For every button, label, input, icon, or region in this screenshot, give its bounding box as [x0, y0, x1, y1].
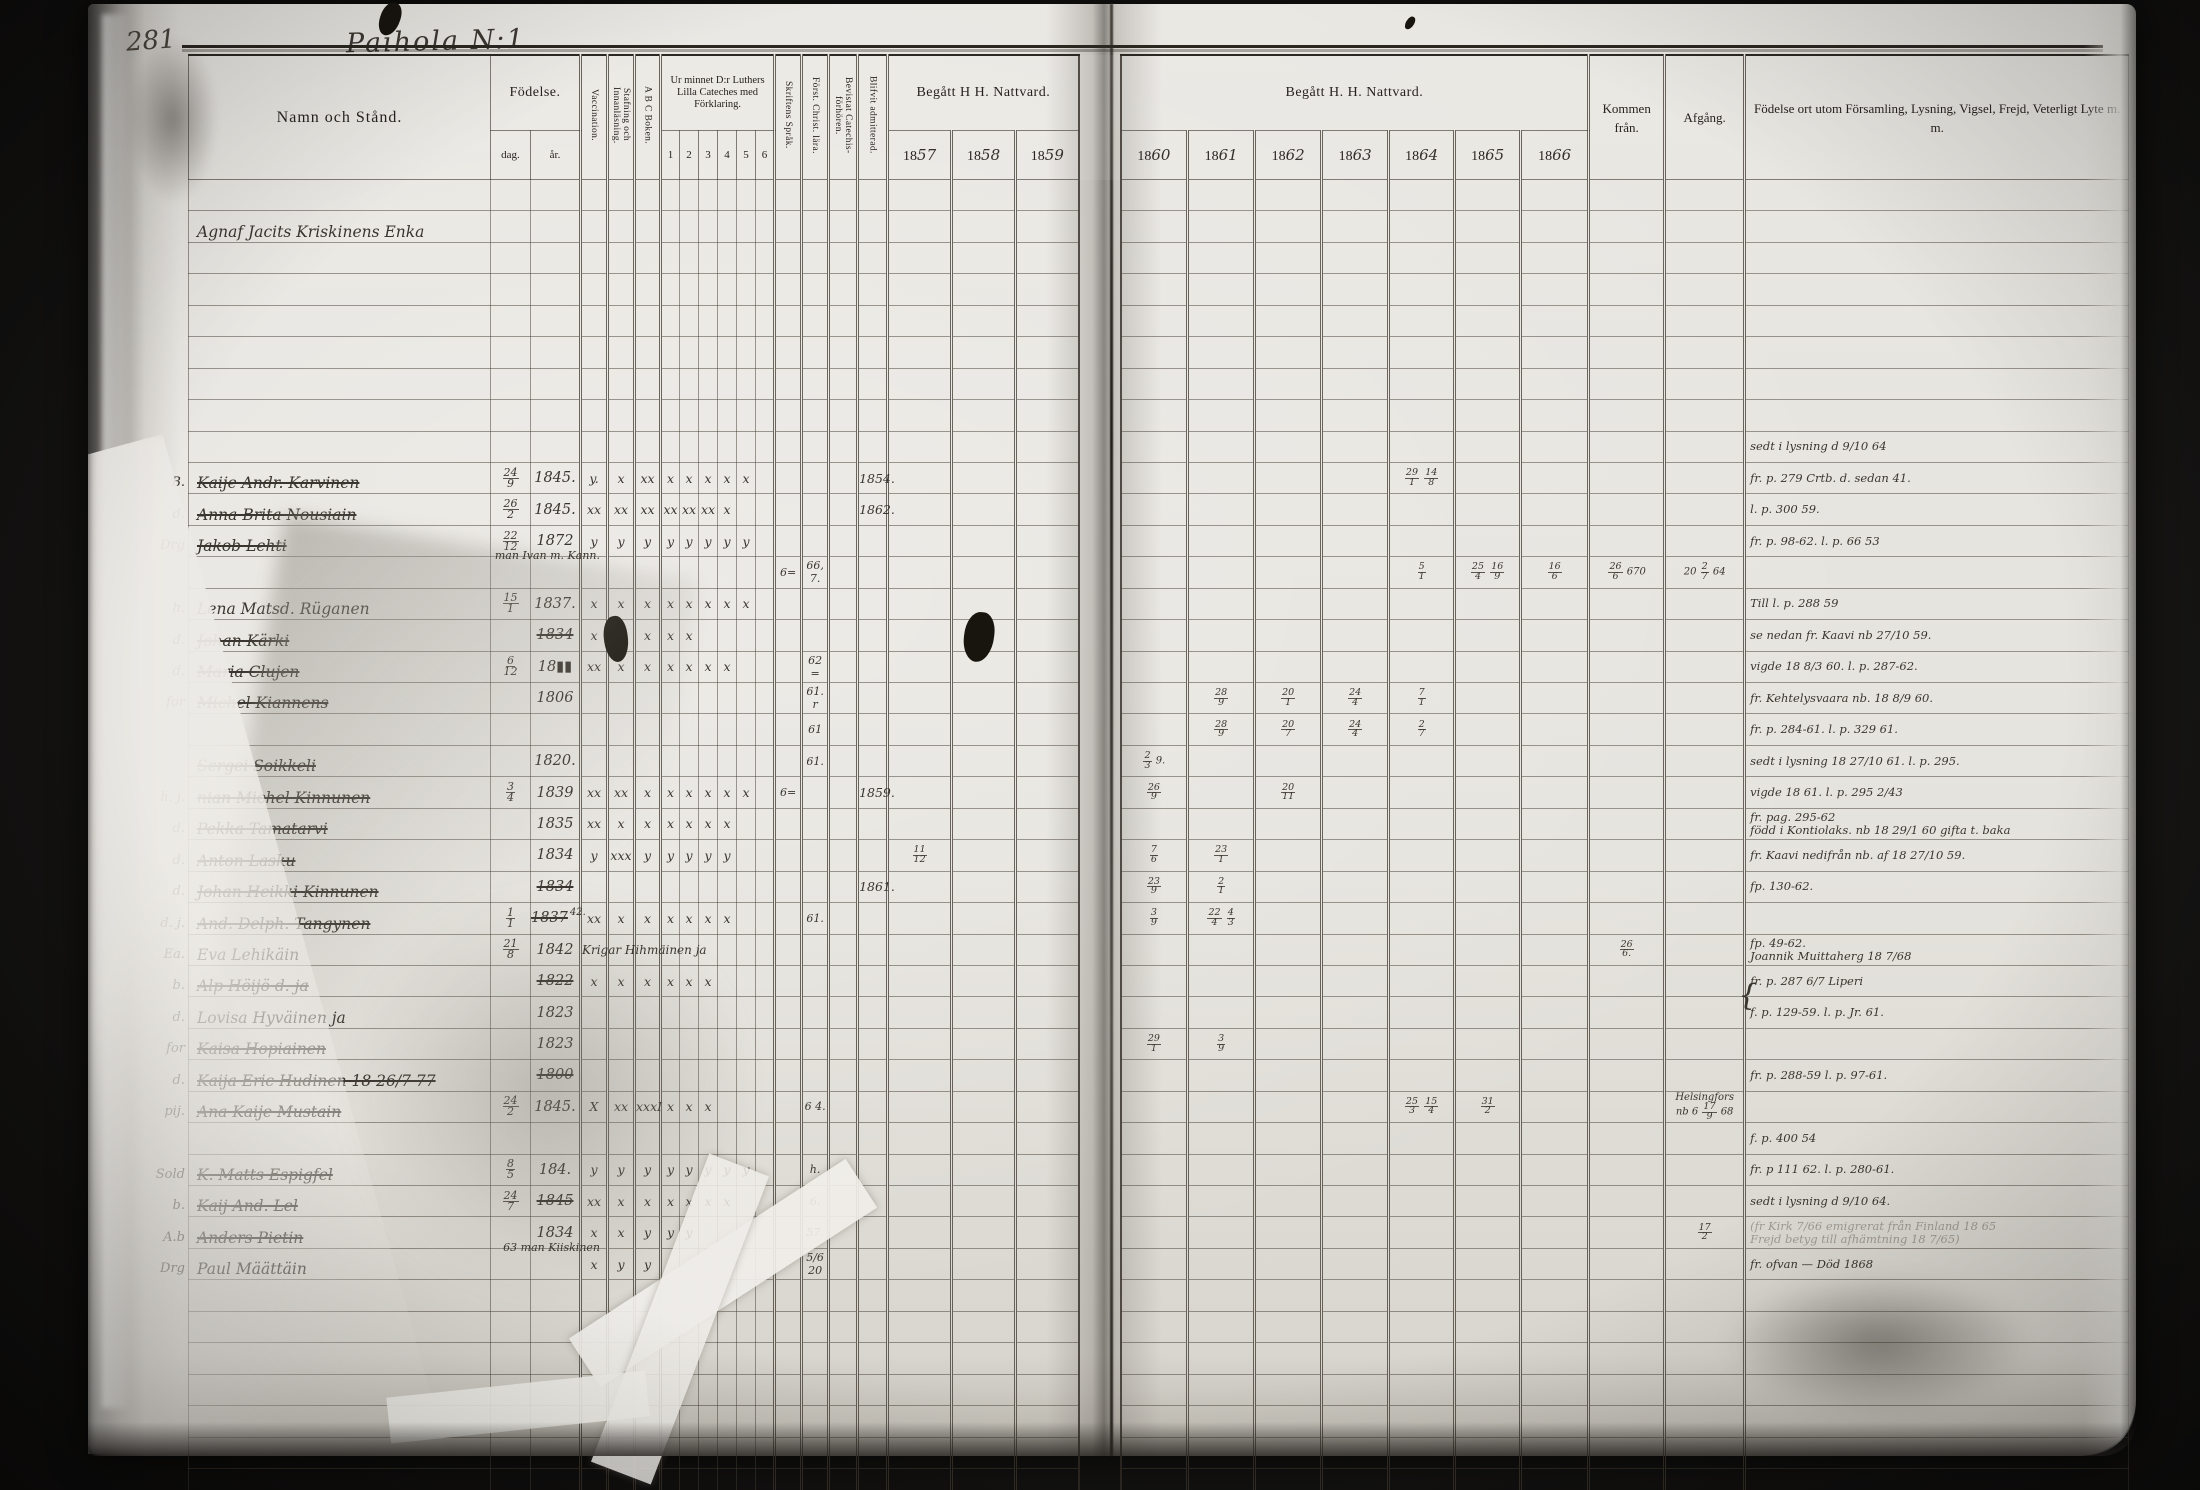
- cell-communion-1866: [1521, 777, 1589, 808]
- cell-communion-1862: [1255, 274, 1322, 305]
- cell-examinations: [829, 211, 858, 242]
- cell-came-from: [1589, 1154, 1665, 1185]
- cell-departure: [1665, 1060, 1745, 1091]
- cell-vaccination: [581, 1060, 608, 1091]
- cell-cat-1: [661, 274, 680, 305]
- cell-communion-1860: [1121, 620, 1188, 651]
- cell-communion-1863: [1322, 494, 1389, 525]
- cell-abc: [635, 1280, 661, 1311]
- cell-birth-day: [491, 1060, 531, 1091]
- cell-birth-day: 218: [491, 934, 531, 965]
- cell-cat-3: x: [699, 965, 718, 996]
- cell-examinations: [829, 1154, 858, 1185]
- cell-communion-1865: [1455, 1343, 1521, 1374]
- cell-examinations: [829, 242, 858, 273]
- cell-communion-1858: [952, 683, 1016, 714]
- cell-admitted: [858, 1343, 888, 1374]
- cell-remarks: fr. Kaavi nedifrån nb. af 18 27/10 59.: [1745, 840, 2129, 871]
- cell-admitted: [858, 1028, 888, 1059]
- cell-came-from: [1589, 305, 1665, 336]
- cell-communion-1859: [1016, 871, 1079, 902]
- cell-doctrine: 61.: [802, 903, 829, 934]
- cell-birth-day: [491, 683, 531, 714]
- cell-came-from: [1589, 903, 1665, 934]
- cell-name: [189, 305, 491, 336]
- cell-communion-1863: [1322, 337, 1389, 368]
- cell-scripture: [775, 211, 802, 242]
- cell-birth-day: 242: [491, 1091, 531, 1122]
- cell-cat-4: [718, 1123, 737, 1154]
- cell-communion-1865: [1455, 211, 1521, 242]
- cell-name: d.Maria Clujen: [189, 651, 491, 682]
- cell-vaccination: [581, 337, 608, 368]
- cell-abc: xxxI: [635, 1091, 661, 1122]
- cell-communion-1862: [1255, 1154, 1322, 1185]
- cell-admitted: 1861.: [858, 871, 888, 902]
- cell-birth-day: [491, 400, 531, 431]
- cell-admitted: [858, 1123, 888, 1154]
- cell-cat-3: [699, 211, 718, 242]
- cell-communion-1862: [1255, 1123, 1322, 1154]
- cell-communion-1866: [1521, 1060, 1589, 1091]
- cell-spelling: x: [608, 1186, 635, 1217]
- cell-communion-1858: [952, 903, 1016, 934]
- cell-doctrine: 5/6 20: [802, 1248, 829, 1279]
- cell-communion-1865: [1455, 965, 1521, 996]
- cell-communion-1863: [1322, 462, 1389, 493]
- cell-communion-1865: [1455, 525, 1521, 556]
- cell-cat-6: [756, 180, 775, 211]
- cell-departure: [1665, 997, 1745, 1028]
- cell-cat-2: y: [680, 840, 699, 871]
- cell-vaccination: xx: [581, 494, 608, 525]
- cell-examinations: [829, 400, 858, 431]
- cell-birth-year: 1800: [531, 1060, 581, 1091]
- cell-communion-1863: [1322, 651, 1389, 682]
- cell-name: [189, 1343, 491, 1374]
- cell-communion-1861: [1188, 1091, 1255, 1122]
- cell-communion-1865: [1455, 903, 1521, 934]
- column-header-came-from: Kommen från.: [1589, 55, 1665, 180]
- cell-cat-1: [661, 1248, 680, 1279]
- cell-communion-1862: [1255, 1217, 1322, 1248]
- cell-departure: [1665, 494, 1745, 525]
- cell-communion-1860: [1121, 997, 1188, 1028]
- cell-gutter: [1079, 997, 1121, 1028]
- cell-cat-5: [737, 180, 756, 211]
- cell-cat-4: x: [718, 588, 737, 619]
- cell-examinations: [829, 1091, 858, 1122]
- cell-communion-1863: 244: [1322, 714, 1389, 745]
- cell-cat-6: [756, 1091, 775, 1122]
- cell-spelling: y: [608, 525, 635, 556]
- cell-cat-6: [756, 1186, 775, 1217]
- cell-birth-year: 1845: [531, 1186, 581, 1217]
- cell-cat-6: [756, 1154, 775, 1185]
- cell-spelling: [608, 368, 635, 399]
- cell-spelling: [608, 211, 635, 242]
- cell-doctrine: [802, 180, 829, 211]
- cell-cat-6: [756, 745, 775, 776]
- cell-communion-1858: [952, 1280, 1016, 1311]
- cell-spelling: x: [608, 808, 635, 839]
- cell-gutter: [1079, 494, 1121, 525]
- year-header-1861: 1861: [1188, 131, 1255, 180]
- cell-communion-1864: 291 148: [1389, 462, 1455, 493]
- cell-communion-1859: [1016, 777, 1079, 808]
- cell-vaccination: [581, 180, 608, 211]
- cell-communion-1865: 254 169: [1455, 557, 1521, 588]
- cell-communion-1863: [1322, 620, 1389, 651]
- cell-cat-3: [699, 1217, 718, 1248]
- cell-departure: 172: [1665, 1217, 1745, 1248]
- cell-cat-1: y: [661, 840, 680, 871]
- cell-cat-5: [737, 683, 756, 714]
- cell-birth-year: 1834: [531, 871, 581, 902]
- cell-communion-1864: [1389, 305, 1455, 336]
- cell-name: b.Kaij And. Lel: [189, 1186, 491, 1217]
- cell-communion-1858: [952, 242, 1016, 273]
- cell-cat-1: [661, 1311, 680, 1342]
- cell-communion-1861: [1188, 1343, 1255, 1374]
- cell-name: SoldK. Matts Espigfel: [189, 1154, 491, 1185]
- cell-departure: [1665, 242, 1745, 273]
- cell-communion-1864: [1389, 1154, 1455, 1185]
- cell-communion-1861: [1188, 494, 1255, 525]
- cell-examinations: [829, 997, 858, 1028]
- cell-cat-4: [718, 557, 737, 588]
- cell-vaccination: [581, 1280, 608, 1311]
- cell-came-from: [1589, 1374, 1665, 1405]
- cell-cat-4: [718, 1343, 737, 1374]
- cell-admitted: [858, 211, 888, 242]
- cell-communion-1860: [1121, 1248, 1188, 1279]
- cell-gutter: [1079, 431, 1121, 462]
- cell-examinations: [829, 431, 858, 462]
- cell-cat-4: [718, 1028, 737, 1059]
- cell-communion-1861: [1188, 1374, 1255, 1405]
- cell-communion-1860: [1121, 305, 1188, 336]
- cell-gutter: [1079, 1091, 1121, 1122]
- cell-birth-year: 1845.: [531, 494, 581, 525]
- cell-communion-1865: [1455, 651, 1521, 682]
- cell-cat-3: [699, 368, 718, 399]
- cell-communion-1860: [1121, 1468, 1188, 1490]
- cell-scripture: [775, 934, 802, 965]
- cell-communion-1859: [1016, 431, 1079, 462]
- cell-cat-2: x: [680, 903, 699, 934]
- cell-communion-1862: [1255, 651, 1322, 682]
- cell-came-from: [1589, 368, 1665, 399]
- cell-cat-5: [737, 1468, 756, 1490]
- cell-examinations: [829, 934, 858, 965]
- cell-gutter: [1079, 462, 1121, 493]
- record-row: [189, 1468, 2129, 1490]
- cell-communion-1865: [1455, 777, 1521, 808]
- cell-spelling: [608, 1311, 635, 1342]
- cell-communion-1863: [1322, 431, 1389, 462]
- cell-cat-2: y: [680, 1217, 699, 1248]
- cell-gutter: [1079, 903, 1121, 934]
- cell-communion-1863: [1322, 903, 1389, 934]
- cell-communion-1860: [1121, 1123, 1188, 1154]
- cell-communion-1863: [1322, 934, 1389, 965]
- cell-communion-1862: 201: [1255, 683, 1322, 714]
- cell-communion-1865: [1455, 1123, 1521, 1154]
- cell-cat-4: [718, 1217, 737, 1248]
- cell-cat-3: y: [699, 840, 718, 871]
- column-header-spelling-reading: Stafning och Innanläsning.: [608, 55, 635, 180]
- cell-came-from: [1589, 1060, 1665, 1091]
- cell-communion-1862: [1255, 557, 1322, 588]
- cell-communion-1864: [1389, 997, 1455, 1028]
- cell-communion-1864: [1389, 1217, 1455, 1248]
- cell-birth-year: [531, 1468, 581, 1490]
- cell-communion-1866: [1521, 651, 1589, 682]
- book-right-page-edges: [2084, 4, 2136, 1456]
- cell-remarks: [1745, 1374, 2129, 1405]
- cell-communion-1866: [1521, 1091, 1589, 1122]
- cell-communion-1858: [952, 1091, 1016, 1122]
- cell-cat-5: [737, 368, 756, 399]
- cell-abc: [635, 745, 661, 776]
- record-row: h.Lena Matsd. Rüganen1511837.xxxxxxxxTil…: [189, 588, 2129, 619]
- cell-abc: [635, 714, 661, 745]
- cell-cat-6: [756, 808, 775, 839]
- cell-spelling: [608, 305, 635, 336]
- cell-remarks: [1745, 400, 2129, 431]
- cell-came-from: [1589, 1248, 1665, 1279]
- cell-cat-5: [737, 557, 756, 588]
- cell-communion-1866: [1521, 997, 1589, 1028]
- cell-cat-1: [661, 557, 680, 588]
- cell-doctrine: [802, 934, 829, 965]
- cell-scripture: [775, 1123, 802, 1154]
- cell-name: Agnaf Jacits Kriskinens Enka: [189, 211, 491, 242]
- cell-birth-year: 1845.: [531, 462, 581, 493]
- cell-communion-1859: [1016, 808, 1079, 839]
- cell-communion-1861: [1188, 997, 1255, 1028]
- cell-doctrine: [802, 494, 829, 525]
- cell-cat-3: [699, 242, 718, 273]
- cell-scripture: [775, 588, 802, 619]
- cell-doctrine: [802, 525, 829, 556]
- cell-communion-1864: [1389, 808, 1455, 839]
- cell-communion-1857: [888, 903, 952, 934]
- cell-departure: [1665, 1374, 1745, 1405]
- cell-communion-1859: [1016, 745, 1079, 776]
- cell-communion-1858: [952, 400, 1016, 431]
- cell-scripture: 6=: [775, 557, 802, 588]
- cell-communion-1858: [952, 494, 1016, 525]
- cell-doctrine: [802, 400, 829, 431]
- record-row: 6128920724427fr. p. 284-61. l. p. 329 61…: [189, 714, 2129, 745]
- cell-name: [189, 1280, 491, 1311]
- cell-departure: [1665, 903, 1745, 934]
- cell-birth-year: [531, 1311, 581, 1342]
- record-row: pij.Ana Kaije Mustain2421845.XxxxxxIxxx6…: [189, 1091, 2129, 1122]
- cell-communion-1861: [1188, 400, 1255, 431]
- cell-communion-1865: [1455, 1248, 1521, 1279]
- cell-cat-3: y: [699, 525, 718, 556]
- cell-communion-1860: [1121, 1060, 1188, 1091]
- cell-spelling: x: [608, 965, 635, 996]
- cell-communion-1861: [1188, 525, 1255, 556]
- cell-cat-4: y: [718, 525, 737, 556]
- cell-communion-1861: [1188, 1468, 1255, 1490]
- cell-departure: [1665, 274, 1745, 305]
- cell-examinations: [829, 903, 858, 934]
- cell-remarks: fr. ofvan — Död 1868: [1745, 1248, 2129, 1279]
- cell-spelling: xx: [608, 494, 635, 525]
- cell-communion-1861: [1188, 588, 1255, 619]
- cell-cat-1: [661, 242, 680, 273]
- cell-cat-3: [699, 745, 718, 776]
- cell-birth-year: 1837.: [531, 588, 581, 619]
- cell-examinations: [829, 808, 858, 839]
- cell-communion-1864: [1389, 1028, 1455, 1059]
- cell-communion-1859: [1016, 1091, 1079, 1122]
- cell-communion-1865: [1455, 1154, 1521, 1185]
- cell-remarks: Till l. p. 288 59: [1745, 588, 2129, 619]
- cell-gutter: [1079, 683, 1121, 714]
- cell-cat-3: y: [699, 1154, 718, 1185]
- record-row: d.Anton Lasku1834yxxxyyyyy111276231fr. K…: [189, 840, 2129, 871]
- cell-communion-1863: [1322, 274, 1389, 305]
- cell-cat-6: [756, 305, 775, 336]
- cell-communion-1857: [888, 1248, 952, 1279]
- cell-birth-day: [491, 1343, 531, 1374]
- subheader-cat-1: 1: [661, 131, 680, 180]
- cell-spelling: [608, 242, 635, 273]
- cell-birth-day: [491, 431, 531, 462]
- cell-doctrine: 61: [802, 714, 829, 745]
- cell-cat-2: x: [680, 1091, 699, 1122]
- cell-vaccination: xx: [581, 1186, 608, 1217]
- cell-communion-1861: [1188, 431, 1255, 462]
- cell-communion-1857: [888, 1028, 952, 1059]
- cell-cat-5: [737, 1091, 756, 1122]
- cell-birth-year: [531, 337, 581, 368]
- cell-communion-1860: 269: [1121, 777, 1188, 808]
- cell-scripture: [775, 462, 802, 493]
- page-number: 281: [125, 24, 177, 57]
- cell-communion-1862: [1255, 997, 1322, 1028]
- cell-communion-1866: [1521, 462, 1589, 493]
- cell-examinations: [829, 1248, 858, 1279]
- cell-birth-day: [491, 871, 531, 902]
- cell-communion-1864: [1389, 1123, 1455, 1154]
- cell-cat-6: [756, 1248, 775, 1279]
- cell-communion-1862: [1255, 305, 1322, 336]
- cell-cat-4: [718, 211, 737, 242]
- cell-communion-1857: [888, 525, 952, 556]
- cell-cat-1: [661, 1123, 680, 1154]
- cell-communion-1861: [1188, 1311, 1255, 1342]
- record-row: [189, 305, 2129, 336]
- cell-communion-1860: [1121, 1343, 1188, 1374]
- cell-examinations: [829, 1311, 858, 1342]
- cell-communion-1861: [1188, 305, 1255, 336]
- cell-cat-4: [718, 620, 737, 651]
- cell-communion-1860: [1121, 683, 1188, 714]
- cell-communion-1865: [1455, 274, 1521, 305]
- cell-cat-6: [756, 462, 775, 493]
- cell-cat-5: [737, 1217, 756, 1248]
- cell-scripture: [775, 1468, 802, 1490]
- cell-cat-2: [680, 557, 699, 588]
- cell-communion-1861: [1188, 180, 1255, 211]
- cell-vaccination: x: [581, 588, 608, 619]
- cell-cat-3: x: [699, 588, 718, 619]
- cell-communion-1857: [888, 431, 952, 462]
- cell-scripture: [775, 1217, 802, 1248]
- cell-communion-1858: [952, 934, 1016, 965]
- cell-gutter: [1079, 1248, 1121, 1279]
- cell-departure: [1665, 840, 1745, 871]
- cell-cat-4: [718, 400, 737, 431]
- cell-remarks: vigde 18 8/3 60. l. p. 287-62.: [1745, 651, 2129, 682]
- cell-birth-year: 1823: [531, 1028, 581, 1059]
- cell-doctrine: [802, 1028, 829, 1059]
- cell-birth-year: 1835: [531, 808, 581, 839]
- cell-name: [189, 1468, 491, 1490]
- cell-communion-1864: 71: [1389, 683, 1455, 714]
- cell-came-from: [1589, 1311, 1665, 1342]
- cell-gutter: [1079, 211, 1121, 242]
- cell-name: h. j.nian Michel Kinnunen: [189, 777, 491, 808]
- cell-remarks: sedt i lysning d 9/10 64.: [1745, 1186, 2129, 1217]
- cell-name: d.Anton Lasku: [189, 840, 491, 871]
- cell-cat-5: [737, 871, 756, 902]
- cell-cat-3: x: [699, 651, 718, 682]
- cell-communion-1865: [1455, 808, 1521, 839]
- cell-admitted: [858, 368, 888, 399]
- cell-cat-2: [680, 1311, 699, 1342]
- cell-communion-1858: [952, 431, 1016, 462]
- cell-name: [189, 1123, 491, 1154]
- cell-cat-3: [699, 1123, 718, 1154]
- cell-communion-1859: [1016, 305, 1079, 336]
- year-header-1862: 1862: [1255, 131, 1322, 180]
- cell-came-from: [1589, 651, 1665, 682]
- cell-birth-day: 247: [491, 1186, 531, 1217]
- cell-name: B.Kaije Andr. Karvinen: [189, 462, 491, 493]
- cell-vaccination: [581, 305, 608, 336]
- cell-admitted: [858, 651, 888, 682]
- cell-spelling: x: [608, 903, 635, 934]
- cell-remarks: fr. pag. 295-62född i Kontiolaks. nb 18 …: [1745, 808, 2129, 839]
- cell-doctrine: [802, 871, 829, 902]
- cell-gutter: [1079, 180, 1121, 211]
- cell-abc: x: [635, 965, 661, 996]
- cell-communion-1859: [1016, 651, 1079, 682]
- cell-name: b.Alp Höijö d. ja: [189, 965, 491, 996]
- cell-cat-5: [737, 965, 756, 996]
- cell-abc: x: [635, 620, 661, 651]
- cell-cat-6: [756, 997, 775, 1028]
- cell-gutter: [1079, 588, 1121, 619]
- cell-abc: [635, 274, 661, 305]
- cell-remarks: [1745, 337, 2129, 368]
- cell-examinations: [829, 494, 858, 525]
- cell-remarks: [1745, 274, 2129, 305]
- cell-departure: [1665, 431, 1745, 462]
- cell-gutter: [1079, 871, 1121, 902]
- cell-abc: [635, 1311, 661, 1342]
- cell-communion-1863: [1322, 965, 1389, 996]
- cell-communion-1857: [888, 934, 952, 965]
